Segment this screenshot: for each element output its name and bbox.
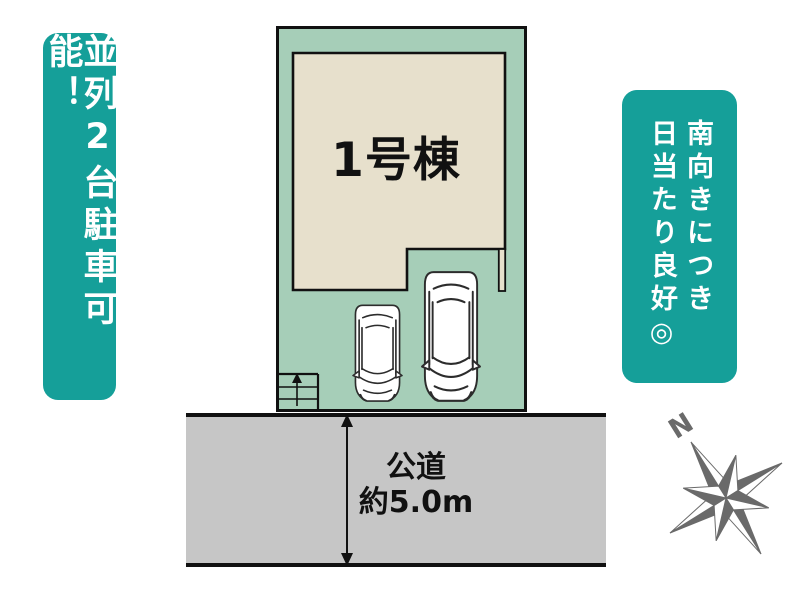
building-label: 1号棟 [296, 121, 496, 190]
road-width: 約5.0m [336, 486, 496, 521]
sunlight-banner: 南向きにつき 日当たり良好◎ [622, 90, 737, 383]
compass-north-label: N [663, 407, 699, 445]
road-label: 公道 約5.0m [336, 451, 496, 521]
parking-banner-text: 並列2台駐車可能！ [45, 33, 115, 400]
sunlight-line-2: 日当たり良好◎ [648, 119, 675, 354]
parking-banner: 並列2台駐車可能！ [43, 33, 116, 400]
sunlight-line-1: 南向きにつき [684, 119, 711, 354]
compass-rose-icon: N [617, 378, 800, 589]
road-name: 公道 [336, 451, 496, 486]
lot-area [276, 26, 527, 412]
site-plan-canvas: 並列2台駐車可能！ [0, 0, 800, 599]
sunlight-banner-text: 南向きにつき 日当たり良好◎ [639, 119, 720, 354]
